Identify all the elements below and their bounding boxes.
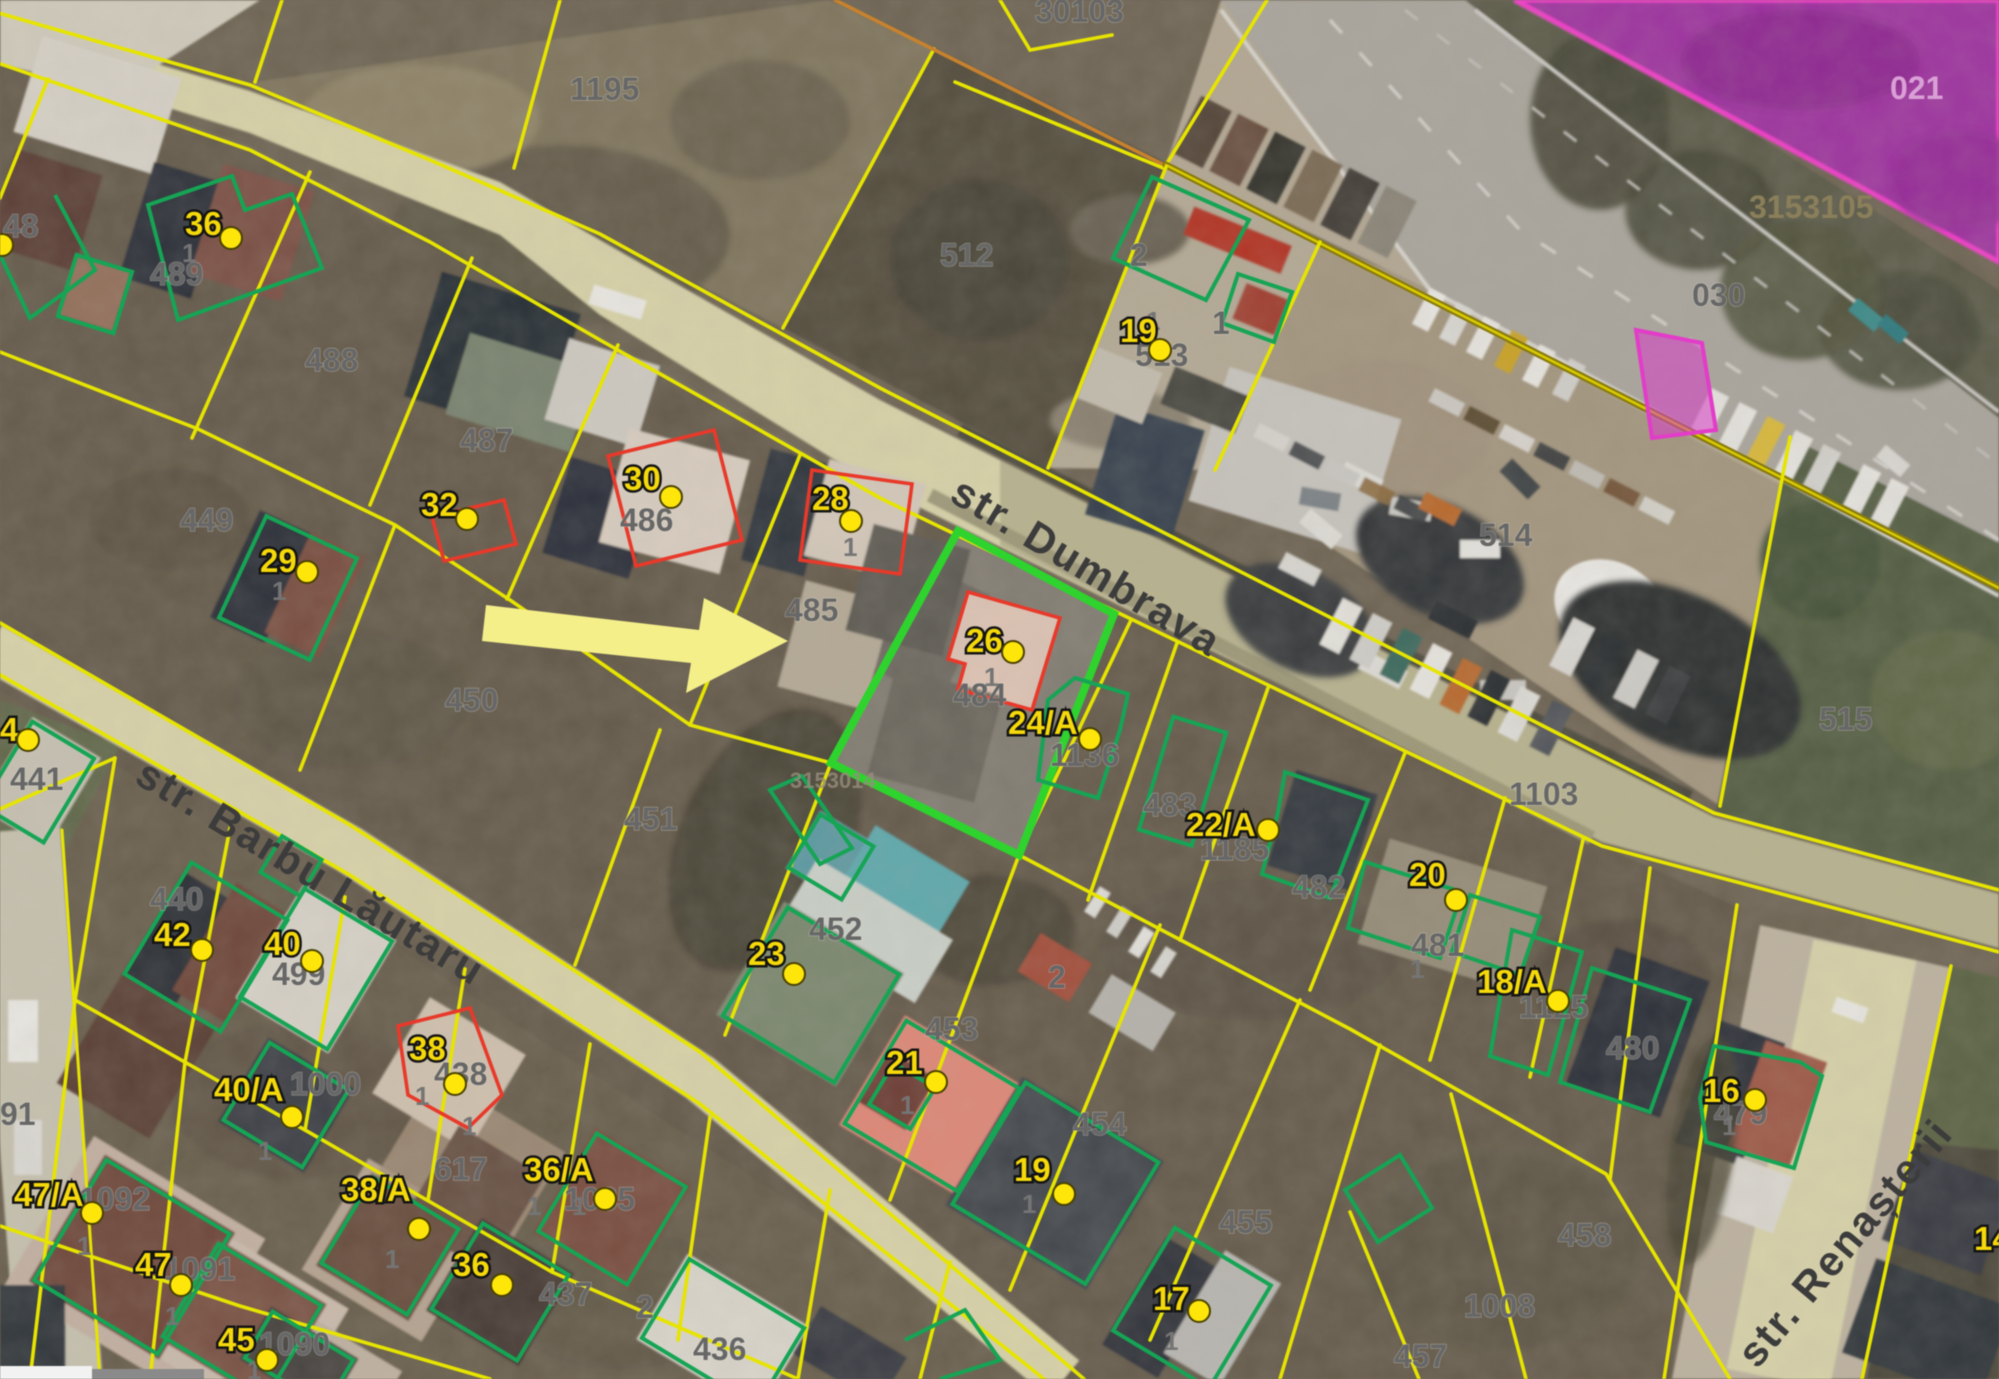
svg-text:1: 1	[984, 662, 998, 692]
svg-text:512: 512	[940, 237, 993, 273]
svg-text:482: 482	[1292, 869, 1345, 905]
svg-text:91: 91	[0, 1096, 36, 1132]
svg-text:1: 1	[1410, 954, 1424, 984]
svg-text:1008: 1008	[1464, 1288, 1535, 1324]
svg-text:1: 1	[1722, 1111, 1736, 1141]
svg-text:457: 457	[1394, 1338, 1447, 1374]
svg-text:32: 32	[421, 486, 458, 523]
svg-text:452: 452	[809, 911, 862, 947]
svg-text:24/A: 24/A	[1008, 704, 1078, 741]
svg-text:1: 1	[1164, 1326, 1178, 1356]
svg-text:453: 453	[925, 1011, 978, 1047]
svg-text:1: 1	[385, 1244, 399, 1274]
svg-text:21: 21	[886, 1044, 923, 1081]
svg-text:1: 1	[462, 1111, 476, 1141]
svg-text:47/A: 47/A	[14, 1176, 84, 1213]
svg-text:42: 42	[154, 916, 191, 953]
svg-text:449: 449	[180, 502, 233, 538]
svg-text:480: 480	[1606, 1030, 1659, 1066]
svg-text:436: 436	[693, 1331, 746, 1367]
svg-text:484: 484	[953, 677, 1007, 713]
svg-text:23: 23	[748, 935, 785, 972]
svg-text:20: 20	[1409, 856, 1446, 893]
svg-text:454: 454	[1073, 1106, 1127, 1142]
svg-text:1: 1	[415, 1081, 429, 1111]
svg-text:1000: 1000	[290, 1066, 361, 1102]
svg-text:617: 617	[434, 1151, 487, 1187]
svg-text:38/A: 38/A	[341, 1171, 411, 1208]
svg-text:1: 1	[182, 238, 196, 268]
svg-text:14: 14	[1974, 1220, 1999, 1257]
svg-text:450: 450	[445, 682, 498, 718]
svg-text:1103: 1103	[1509, 776, 1578, 812]
svg-text:45: 45	[218, 1321, 255, 1358]
svg-text:40: 40	[264, 925, 301, 962]
svg-text:451: 451	[624, 801, 677, 837]
svg-text:487: 487	[460, 422, 513, 458]
svg-text:458: 458	[1558, 1217, 1611, 1253]
svg-text:36/A: 36/A	[524, 1151, 594, 1188]
svg-text:47: 47	[135, 1246, 172, 1283]
svg-text:1195: 1195	[570, 71, 639, 107]
svg-text:1: 1	[1022, 1189, 1036, 1219]
svg-text:16: 16	[1703, 1072, 1740, 1109]
svg-text:1: 1	[900, 1090, 914, 1120]
svg-text:22/A: 22/A	[1186, 806, 1256, 843]
svg-text:488: 488	[305, 342, 358, 378]
svg-text:437: 437	[539, 1276, 592, 1312]
svg-text:36: 36	[185, 205, 222, 242]
svg-text:1: 1	[258, 1136, 272, 1166]
svg-text:3153014: 3153014	[790, 768, 876, 793]
svg-text:1: 1	[165, 1301, 179, 1331]
svg-text:514: 514	[1479, 517, 1533, 553]
svg-text:021: 021	[1890, 70, 1943, 106]
svg-text:36: 36	[453, 1246, 490, 1283]
svg-text:28: 28	[812, 480, 849, 517]
svg-text:2: 2	[1048, 959, 1066, 995]
svg-text:2: 2	[1130, 237, 1148, 273]
svg-text:30: 30	[624, 460, 661, 497]
svg-text:1: 1	[272, 576, 286, 606]
svg-text:1: 1	[77, 1231, 91, 1261]
svg-text:38: 38	[409, 1030, 446, 1067]
svg-text:19: 19	[1014, 1151, 1051, 1188]
svg-text:40/A: 40/A	[214, 1071, 284, 1108]
svg-text:1: 1	[843, 532, 857, 562]
svg-text:030: 030	[1692, 277, 1745, 313]
svg-text:485: 485	[785, 592, 838, 628]
svg-text:515: 515	[1819, 701, 1872, 737]
svg-text:17: 17	[1153, 1280, 1190, 1317]
svg-text:30103: 30103	[1035, 0, 1124, 29]
svg-text:29: 29	[260, 542, 297, 579]
svg-text:2: 2	[636, 1289, 654, 1325]
svg-text:440: 440	[150, 881, 203, 917]
svg-text:1: 1	[1212, 305, 1230, 341]
svg-text:441: 441	[10, 761, 63, 797]
svg-text:1: 1	[572, 1191, 586, 1221]
svg-text:455: 455	[1219, 1204, 1272, 1240]
svg-text:3153105: 3153105	[1749, 189, 1874, 225]
svg-text:26: 26	[966, 622, 1003, 659]
svg-text:18/A: 18/A	[1477, 963, 1547, 1000]
svg-text:1: 1	[527, 1191, 541, 1221]
svg-text:4: 4	[0, 711, 19, 748]
